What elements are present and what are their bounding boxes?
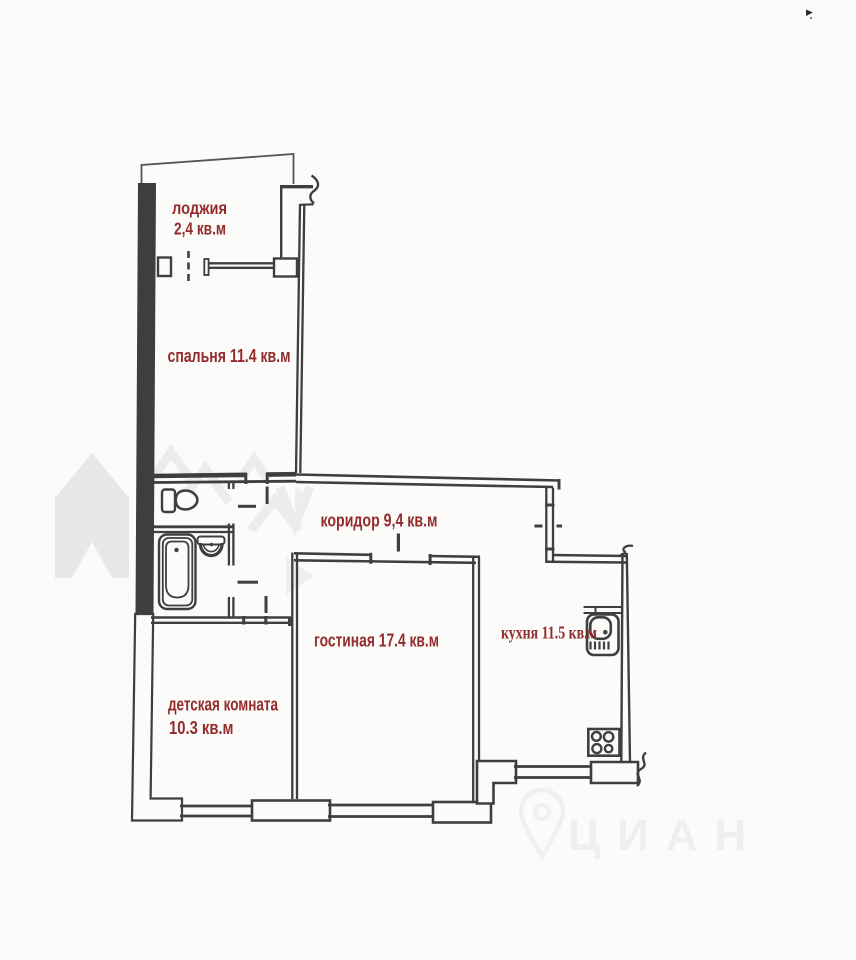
svg-text:10.3 кв.м: 10.3 кв.м bbox=[169, 717, 234, 738]
svg-text:кухня 11.5 кв.м: кухня 11.5 кв.м bbox=[501, 623, 597, 643]
svg-text:ЦИАН: ЦИАН bbox=[568, 811, 763, 860]
svg-text:2,4 кв.м: 2,4 кв.м bbox=[174, 218, 226, 238]
svg-text:детская комната: детская комната bbox=[168, 694, 279, 715]
svg-text:коридор 9,4 кв.м: коридор 9,4 кв.м bbox=[321, 510, 438, 531]
svg-text:спальня 11.4 кв.м: спальня 11.4 кв.м bbox=[168, 345, 291, 366]
svg-text:гостиная 17.4 кв.м: гостиная 17.4 кв.м bbox=[314, 630, 439, 651]
svg-text:лоджия: лоджия bbox=[172, 198, 227, 218]
